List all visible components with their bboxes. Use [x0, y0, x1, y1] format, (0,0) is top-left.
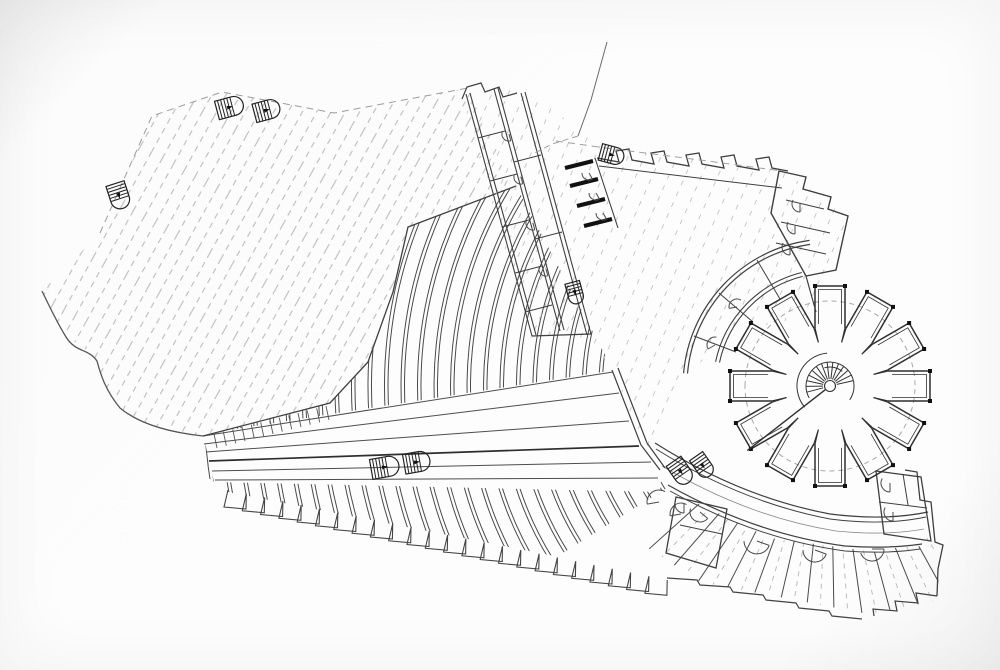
rooms-southeast-door-1 — [881, 479, 890, 493]
hillside-dash-hatch — [42, 88, 516, 436]
corridor-door-1 — [690, 509, 708, 522]
central-spiral-stair — [797, 353, 854, 407]
corridor-floor — [655, 443, 928, 548]
plan-drawing-stage — [0, 0, 1000, 670]
southeast-step-edge — [667, 578, 862, 619]
leader-line — [578, 42, 607, 136]
floor-plan-canvas — [0, 0, 1000, 670]
terrace-sawtooth-edge — [224, 490, 667, 595]
hall-entry-door-1 — [647, 490, 665, 504]
hall-radial-wall — [747, 390, 825, 451]
hall-roof-dashed-circle — [745, 301, 915, 471]
room-south-left-partition — [680, 525, 722, 534]
perimeter-southeast-zigzag — [873, 593, 937, 616]
